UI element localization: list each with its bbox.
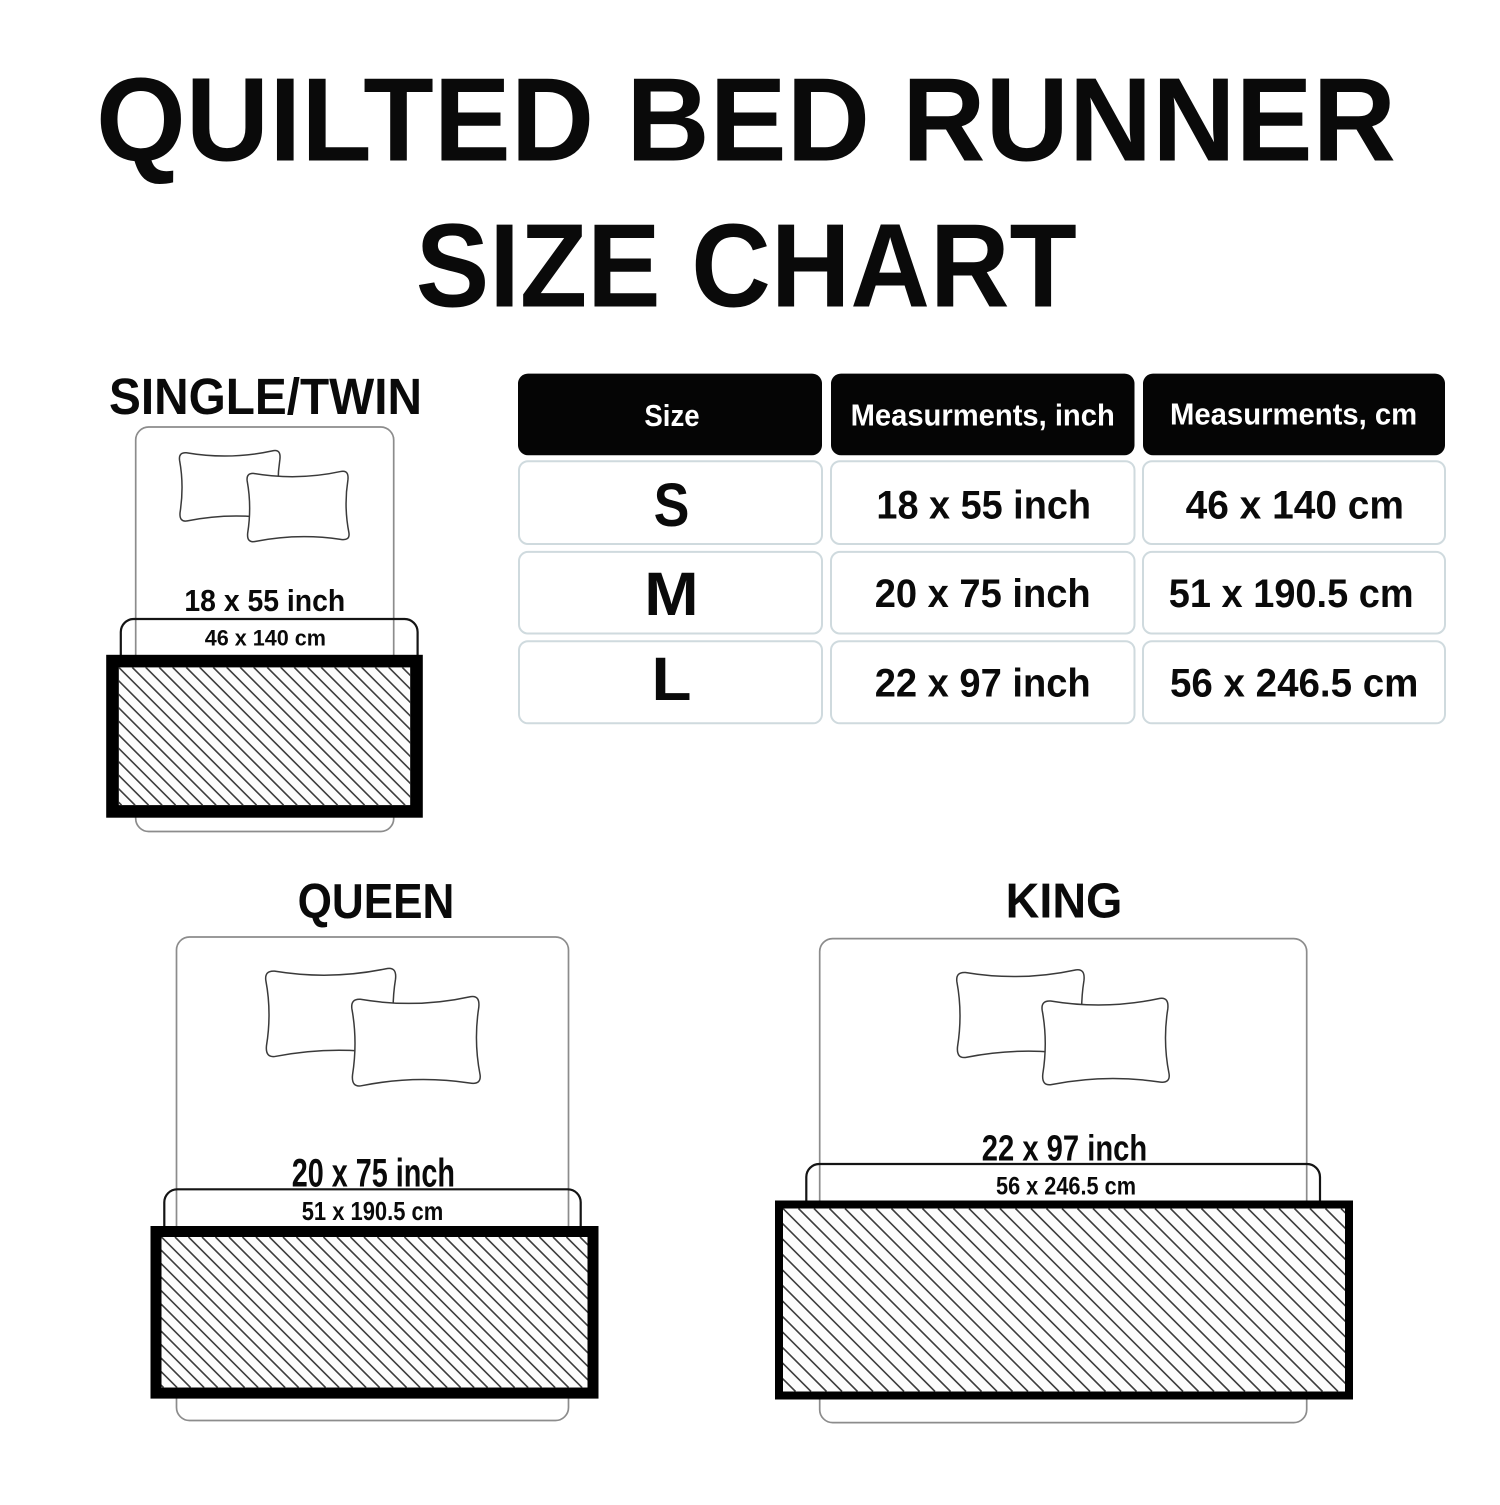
svg-text:20 x 75 inch: 20 x 75 inch — [875, 572, 1091, 616]
svg-text:18 x 55 inch: 18 x 55 inch — [876, 483, 1091, 527]
svg-text:KING: KING — [1006, 873, 1123, 928]
svg-text:QUEEN: QUEEN — [298, 874, 455, 929]
svg-text:L: L — [652, 645, 692, 713]
svg-text:56 x 246.5 cm: 56 x 246.5 cm — [996, 1173, 1136, 1201]
svg-text:22 x 97 inch: 22 x 97 inch — [875, 662, 1091, 706]
svg-text:22 x 97 inch: 22 x 97 inch — [982, 1127, 1147, 1168]
svg-text:56 x 246.5 cm: 56 x 246.5 cm — [1170, 662, 1418, 706]
svg-text:SIZE CHART: SIZE CHART — [416, 201, 1077, 333]
svg-text:46 x 140 cm: 46 x 140 cm — [1186, 483, 1404, 527]
svg-text:M: M — [644, 560, 698, 628]
svg-text:S: S — [654, 471, 690, 539]
svg-text:Size: Size — [644, 398, 699, 433]
svg-text:Measurments, inch: Measurments, inch — [851, 398, 1115, 433]
svg-text:51 x 190.5 cm: 51 x 190.5 cm — [1169, 572, 1414, 616]
svg-text:SINGLE/TWIN: SINGLE/TWIN — [109, 368, 422, 425]
svg-text:Measurments, cm: Measurments, cm — [1170, 397, 1417, 432]
svg-text:51 x 190.5 cm: 51 x 190.5 cm — [302, 1198, 444, 1226]
svg-text:QUILTED BED RUNNER: QUILTED BED RUNNER — [96, 54, 1396, 186]
svg-text:18 x 55 inch: 18 x 55 inch — [184, 585, 345, 618]
svg-text:46 x 140 cm: 46 x 140 cm — [205, 626, 326, 651]
